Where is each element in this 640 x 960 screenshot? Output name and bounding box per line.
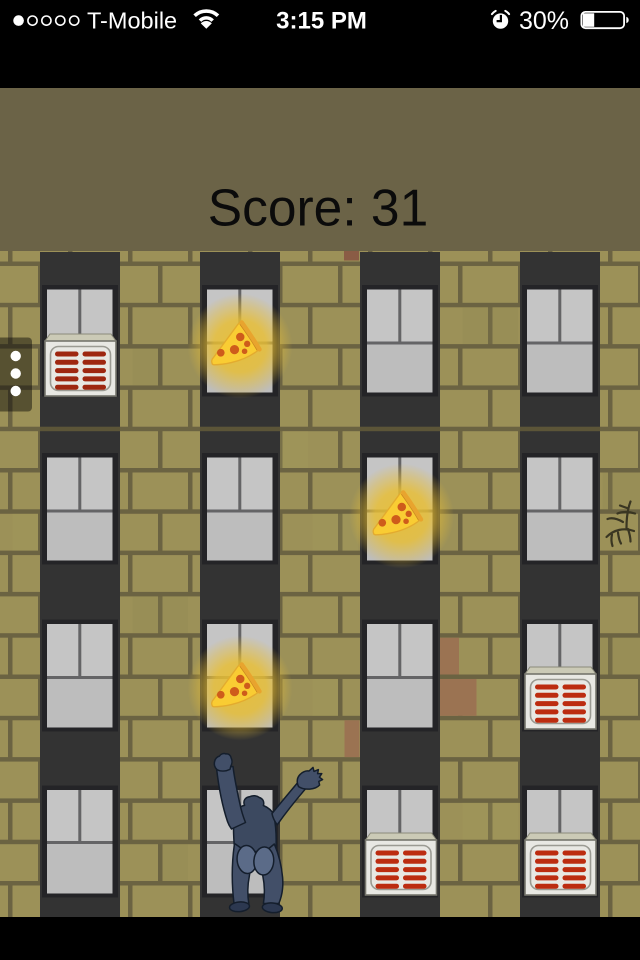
svg-text:30%: 30%	[519, 7, 569, 35]
svg-text:3:15 PM: 3:15 PM	[276, 8, 367, 35]
svg-text:Score: 31: Score: 31	[208, 179, 428, 237]
svg-text:T-Mobile: T-Mobile	[87, 8, 177, 34]
